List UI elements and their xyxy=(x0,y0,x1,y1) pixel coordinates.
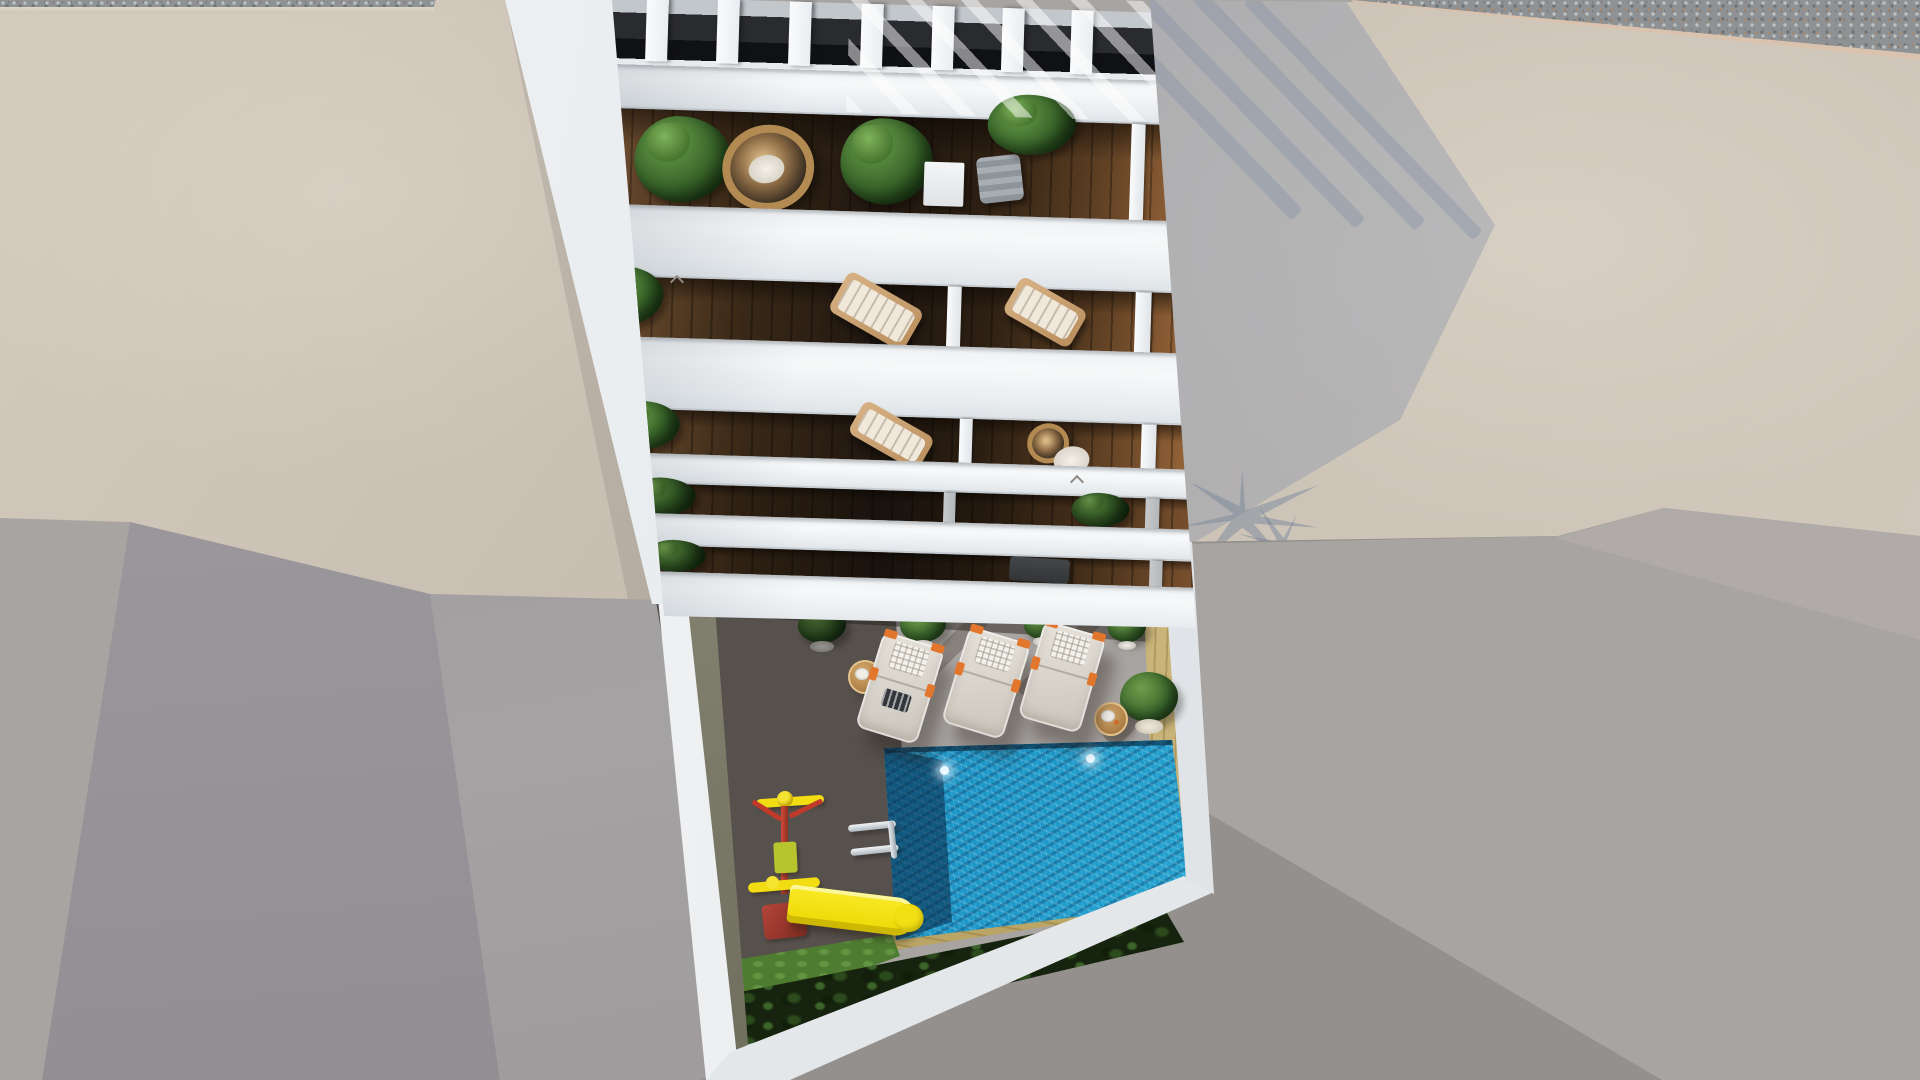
white-planter xyxy=(923,162,964,207)
potted-plant-large xyxy=(1120,672,1178,734)
pool-light xyxy=(1086,754,1095,763)
planter-shrub xyxy=(1071,492,1130,528)
towel xyxy=(880,688,912,713)
strelitzia-plant xyxy=(839,117,934,206)
grey-chair xyxy=(976,154,1025,205)
palm-plant xyxy=(633,115,732,204)
roof-terrace xyxy=(609,108,1212,222)
pergola-slat xyxy=(645,0,669,62)
playground-cap xyxy=(777,791,793,807)
pool-light xyxy=(940,766,949,775)
pergola-slat xyxy=(788,1,812,66)
rattan-chair xyxy=(1024,420,1072,467)
playground-cap xyxy=(766,876,779,889)
rooftop-edge-line xyxy=(0,7,434,13)
egg-chair xyxy=(715,117,821,218)
grey-lounge-chair xyxy=(1009,556,1070,584)
pool-ladder xyxy=(848,819,912,871)
side-table xyxy=(1094,702,1128,736)
pergola-slat xyxy=(716,0,740,64)
aerial-render-scene: Top-down architectural rendering of a wh… xyxy=(0,0,1920,1080)
gravel-strip-top-left xyxy=(0,0,434,7)
playground-climber-box xyxy=(773,841,798,873)
